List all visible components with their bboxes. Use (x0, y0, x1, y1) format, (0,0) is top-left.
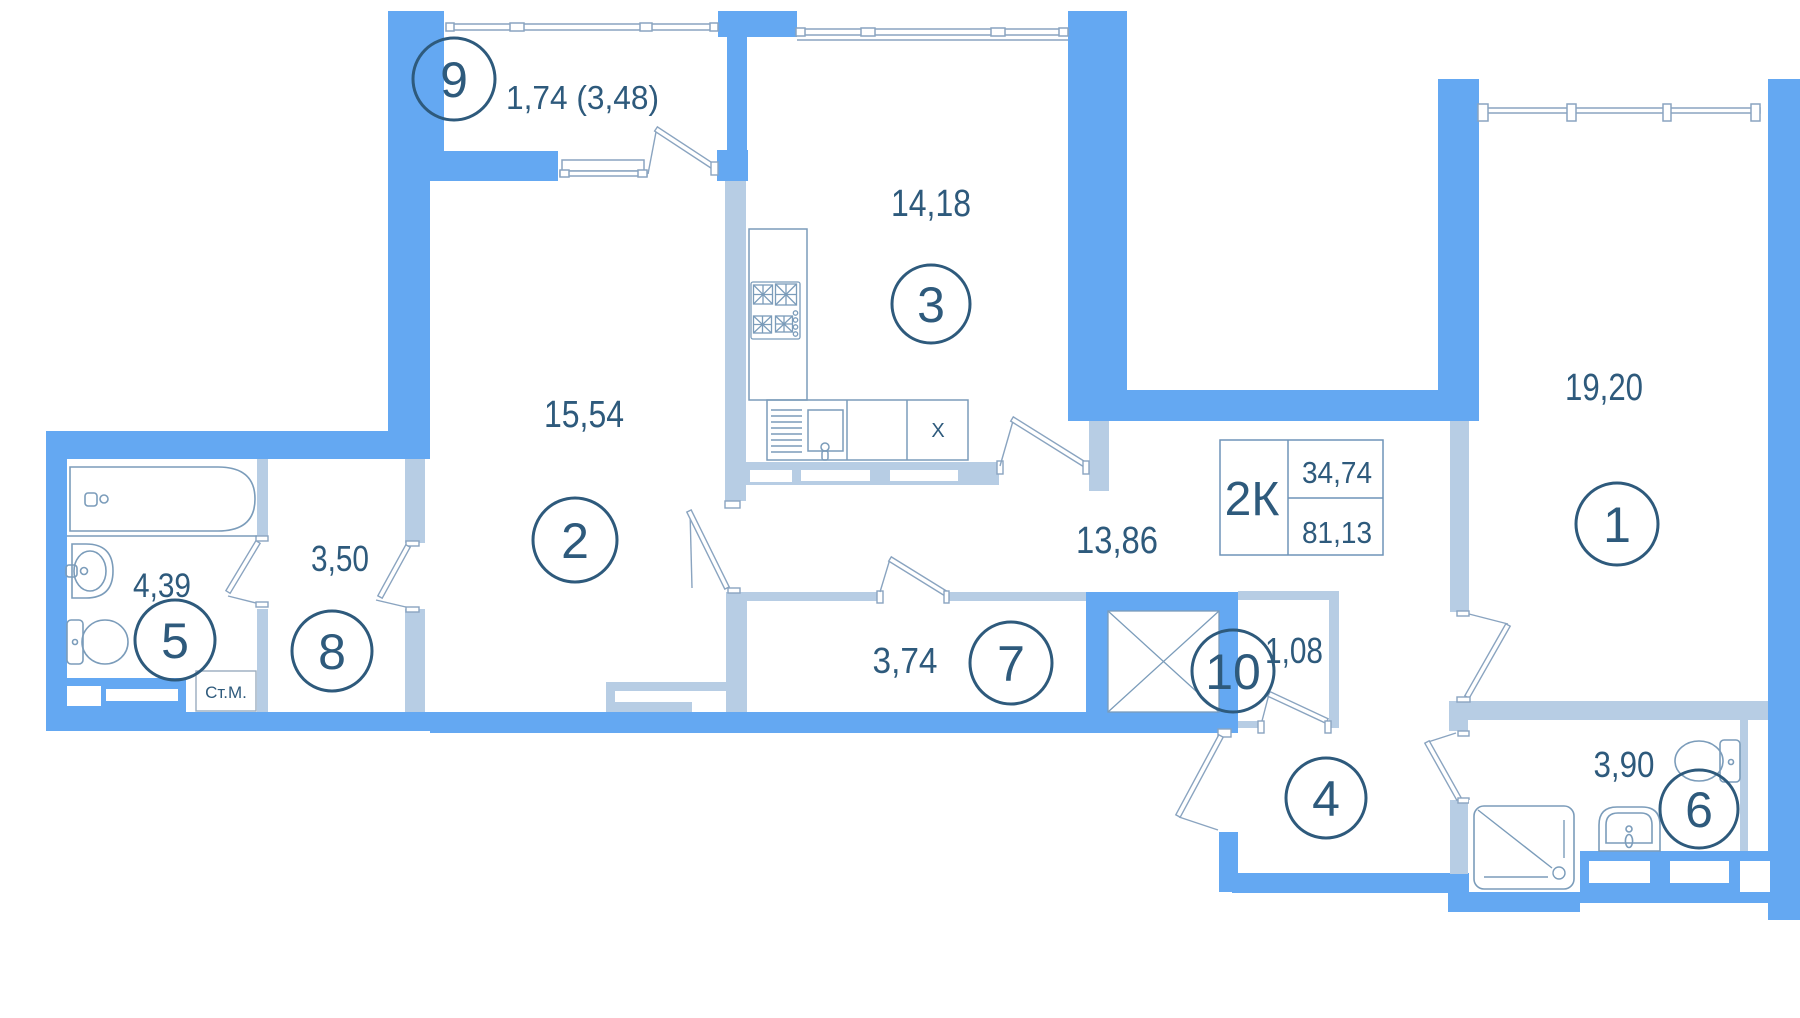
svg-text:81,13: 81,13 (1302, 515, 1372, 550)
svg-text:13,86: 13,86 (1076, 520, 1158, 562)
svg-text:3: 3 (917, 277, 945, 333)
svg-text:2: 2 (561, 513, 589, 569)
svg-text:1: 1 (1603, 497, 1631, 553)
svg-text:3,74: 3,74 (873, 640, 938, 681)
svg-text:4: 4 (1312, 771, 1340, 827)
svg-text:15,54: 15,54 (544, 394, 624, 436)
svg-text:9: 9 (440, 52, 468, 108)
svg-text:X: X (931, 420, 944, 442)
svg-text:3,50: 3,50 (311, 538, 369, 579)
svg-text:8: 8 (318, 624, 346, 680)
svg-text:1,74 (3,48): 1,74 (3,48) (506, 79, 659, 116)
svg-text:Ст.М.: Ст.М. (205, 683, 247, 702)
svg-text:2К: 2К (1225, 473, 1280, 526)
svg-text:7: 7 (997, 636, 1025, 692)
svg-text:5: 5 (161, 613, 189, 669)
svg-text:14,18: 14,18 (891, 183, 971, 225)
svg-text:4,39: 4,39 (133, 567, 191, 605)
svg-text:10: 10 (1205, 644, 1261, 700)
svg-text:34,74: 34,74 (1302, 455, 1372, 490)
svg-text:3,90: 3,90 (1594, 744, 1655, 785)
svg-text:1,08: 1,08 (1265, 630, 1323, 671)
svg-text:19,20: 19,20 (1565, 367, 1643, 409)
svg-text:6: 6 (1685, 782, 1713, 838)
